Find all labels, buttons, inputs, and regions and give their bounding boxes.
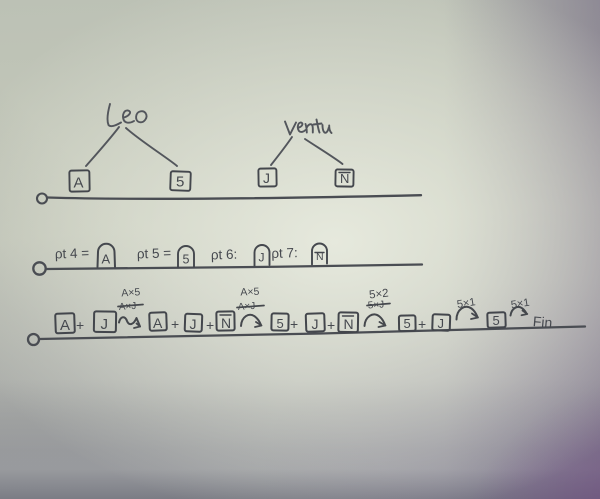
svg-text:N: N [344, 316, 354, 332]
svg-text:J: J [438, 316, 445, 331]
svg-text:N: N [340, 171, 349, 186]
svg-text:5: 5 [277, 316, 284, 331]
svg-text:A: A [74, 175, 84, 192]
svg-text:5: 5 [183, 253, 190, 267]
svg-text:A: A [153, 315, 163, 331]
svg-text:A×J: A×J [118, 301, 136, 313]
svg-text:J: J [101, 316, 109, 333]
svg-text:A×5: A×5 [240, 286, 260, 299]
svg-text:5×J: 5×J [367, 299, 384, 311]
svg-text:+: + [327, 317, 335, 333]
svg-text:A×5: A×5 [121, 286, 141, 299]
svg-text:+: + [290, 316, 298, 332]
svg-text:+: + [206, 317, 214, 333]
svg-text:J: J [263, 170, 270, 186]
svg-text:A: A [60, 317, 70, 334]
svg-text:J: J [312, 316, 319, 332]
svg-text:A×J: A×J [237, 301, 255, 313]
svg-text:5: 5 [176, 174, 184, 191]
svg-text:5: 5 [493, 313, 500, 328]
svg-text:+: + [418, 316, 426, 332]
svg-text:J: J [259, 251, 265, 265]
svg-text:ρt 5 =: ρt 5 = [137, 245, 172, 261]
svg-text:N: N [221, 315, 231, 331]
svg-text:+: + [76, 317, 84, 333]
svg-text:ρt 4 =: ρt 4 = [55, 245, 90, 261]
svg-text:5: 5 [404, 316, 411, 331]
svg-text:J: J [190, 316, 197, 332]
svg-text:ρt 7:: ρt 7: [271, 245, 298, 261]
svg-text:Fin: Fin [532, 313, 553, 331]
svg-text:5×1: 5×1 [510, 297, 530, 312]
svg-text:A: A [102, 252, 111, 267]
svg-text:+: + [171, 316, 179, 332]
svg-text:ρt 6:: ρt 6: [211, 247, 238, 263]
